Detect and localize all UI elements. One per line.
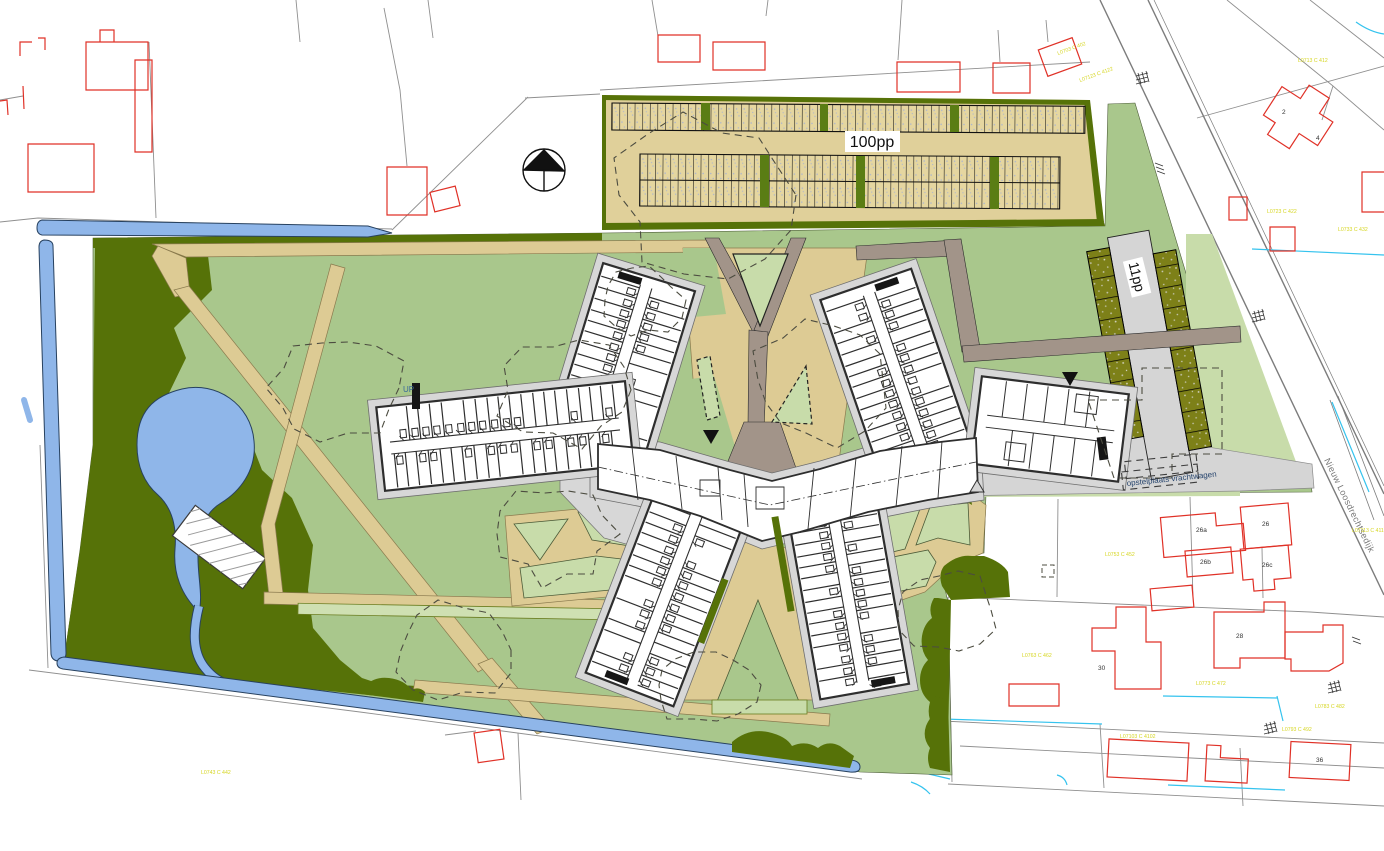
svg-text:UP: UP xyxy=(403,385,414,394)
svg-text:26: 26 xyxy=(1262,521,1270,528)
svg-text:L0743 C 442: L0743 C 442 xyxy=(201,770,231,776)
svg-text:4: 4 xyxy=(1316,135,1320,142)
svg-text:2: 2 xyxy=(1282,109,1286,116)
svg-text:26c: 26c xyxy=(1262,562,1273,569)
svg-text:L0733 C 432: L0733 C 432 xyxy=(1338,227,1368,233)
svg-text:L07113 C 4112: L07113 C 4112 xyxy=(1352,528,1384,534)
svg-text:L0723 C 422: L0723 C 422 xyxy=(1267,209,1297,215)
svg-text:L0773 C 472: L0773 C 472 xyxy=(1196,681,1226,687)
svg-text:L0783 C 482: L0783 C 482 xyxy=(1315,704,1345,710)
svg-text:30: 30 xyxy=(1098,665,1106,672)
svg-text:100pp: 100pp xyxy=(850,134,895,151)
svg-text:36: 36 xyxy=(1316,757,1324,764)
svg-text:L0753 C 452: L0753 C 452 xyxy=(1105,552,1135,558)
svg-text:28: 28 xyxy=(1236,633,1244,640)
svg-text:26a: 26a xyxy=(1196,527,1207,534)
svg-text:L07103 C 4102: L07103 C 4102 xyxy=(1120,734,1156,740)
svg-text:L0713 C 412: L0713 C 412 xyxy=(1298,58,1328,64)
svg-text:26b: 26b xyxy=(1200,559,1211,566)
svg-text:L0763 C 462: L0763 C 462 xyxy=(1022,653,1052,659)
svg-text:L0793 C 492: L0793 C 492 xyxy=(1282,727,1312,733)
